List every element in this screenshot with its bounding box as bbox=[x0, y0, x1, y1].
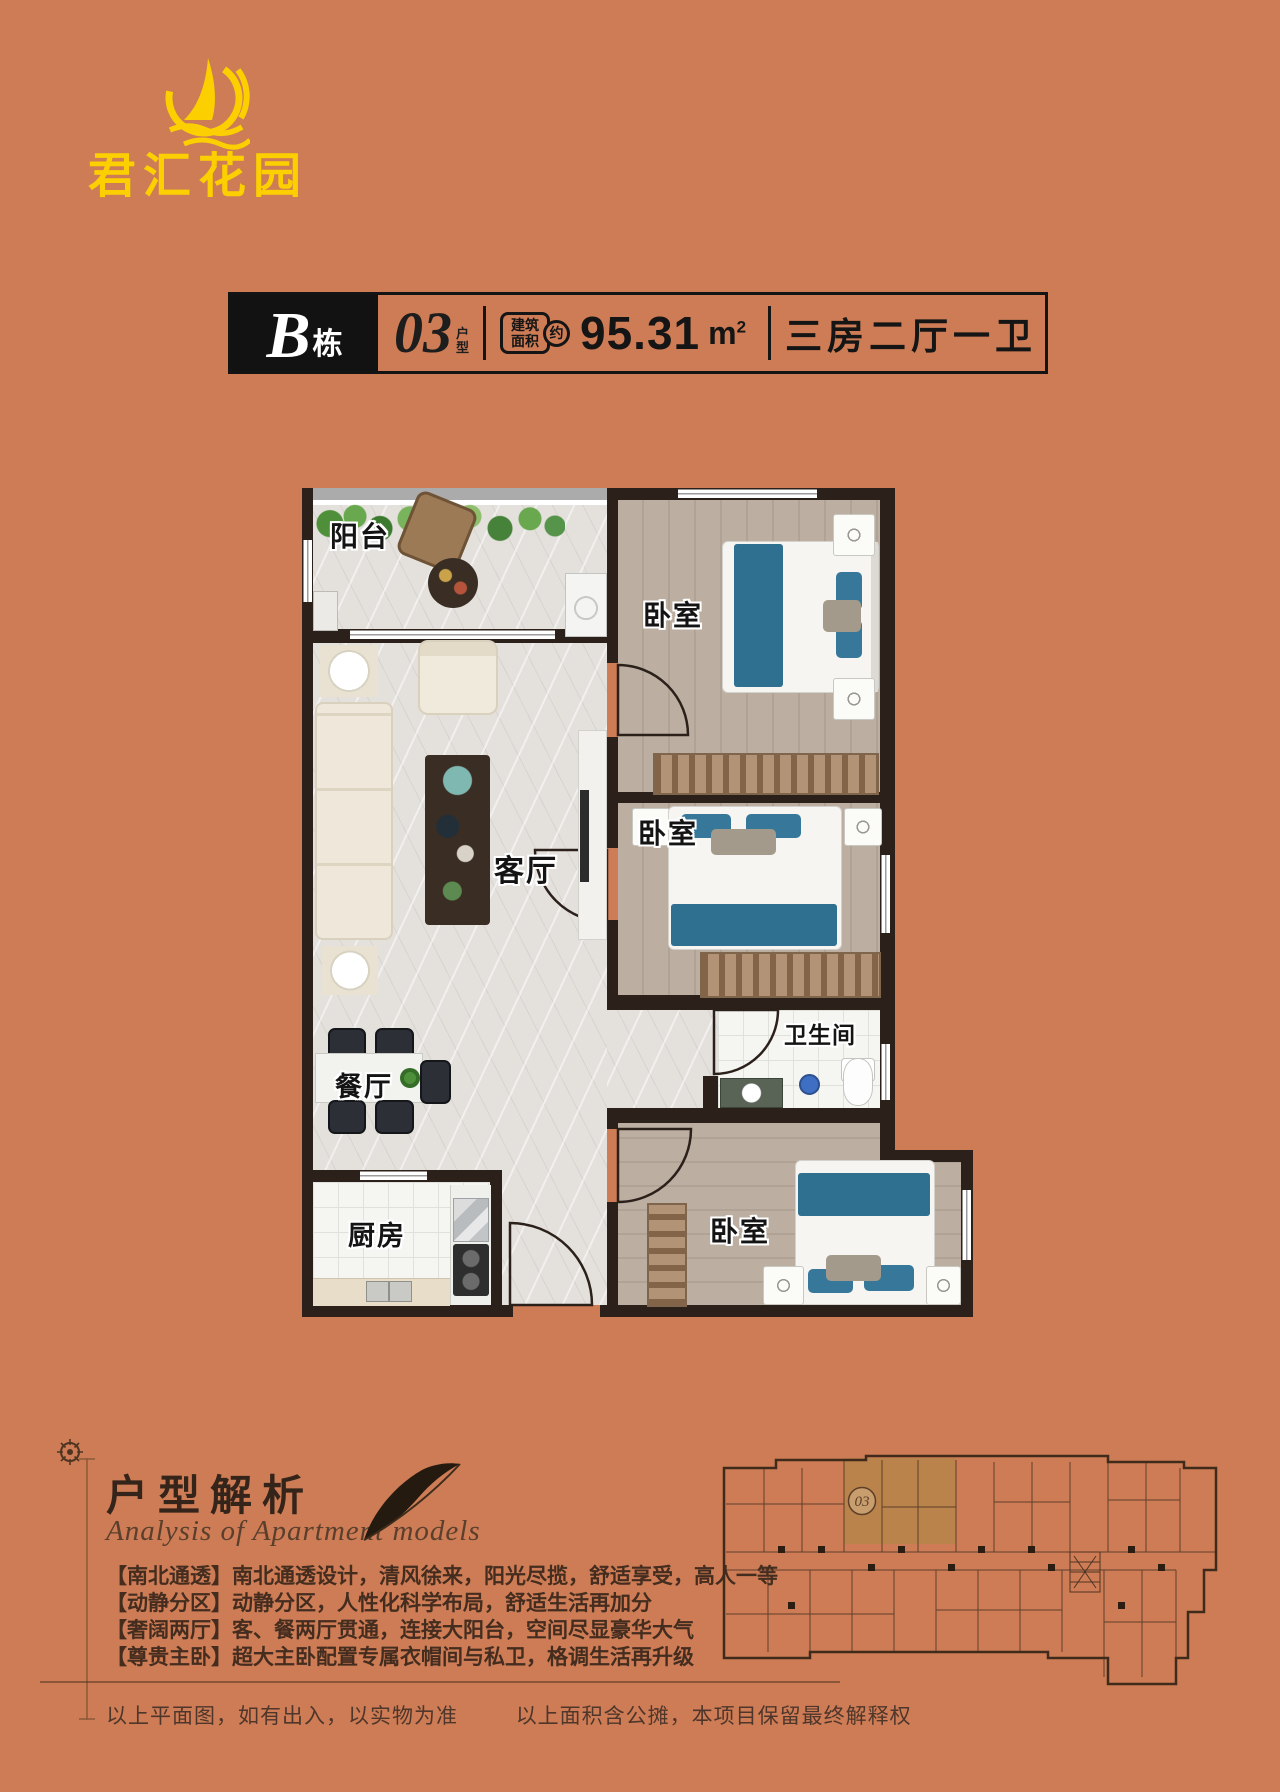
dining-chair bbox=[420, 1060, 451, 1104]
floor-plan: 阳台 卧室 客厅 卧室 卫生间 餐厅 厨房 卧室 bbox=[302, 488, 973, 1317]
feather-quill-icon bbox=[360, 1462, 464, 1544]
bed-top bbox=[722, 541, 879, 693]
label-bedroom-middle: 卧室 bbox=[638, 812, 698, 852]
stove bbox=[453, 1244, 489, 1296]
disclaimer-right: 以上面积含公摊，本项目保留最终解释权 bbox=[516, 1705, 912, 1728]
wall-kitchen-top-b bbox=[427, 1170, 490, 1182]
rug-bedroom-middle bbox=[700, 952, 881, 998]
panel-tick bbox=[79, 1458, 95, 1460]
footer-divider bbox=[40, 1681, 840, 1683]
label-dining: 餐厅 bbox=[335, 1065, 393, 1104]
panel-tick bbox=[79, 1718, 95, 1720]
building-unit-char: 栋 bbox=[313, 325, 343, 365]
area-value: 95.31 bbox=[580, 306, 700, 360]
wall-balcony-stub-left bbox=[313, 629, 350, 643]
kitchen-slider-door bbox=[360, 1170, 427, 1182]
bed-bottom-cushion bbox=[826, 1255, 881, 1281]
fridge bbox=[453, 1198, 489, 1242]
bed-middle-cushion bbox=[711, 829, 776, 855]
bed-bottom bbox=[795, 1160, 935, 1305]
bed-top-headboard bbox=[871, 542, 878, 692]
divider bbox=[483, 306, 486, 360]
brand-name: 君汇花园 bbox=[88, 136, 308, 206]
bathroom-window bbox=[880, 1044, 895, 1100]
mini-plan-door-marks bbox=[778, 1546, 1165, 1609]
wall-kitchen-top-a bbox=[313, 1170, 360, 1182]
area-unit: m2 bbox=[708, 315, 746, 352]
nightstand bbox=[833, 678, 875, 720]
wall-kitchen-right bbox=[490, 1170, 502, 1305]
bedroom-middle-window bbox=[880, 855, 895, 933]
analysis-bullet-4: 【尊贵主卧】超大主卧配置专属衣帽间与私卫，格调生活再升级 bbox=[106, 1641, 694, 1671]
divider bbox=[768, 306, 771, 360]
bed-top-cushion bbox=[823, 600, 861, 632]
label-bedroom-top: 卧室 bbox=[643, 594, 703, 634]
unit-title-bar: B 栋 03 户 型 建筑 面积 约 95.31 m2 三房二厅一卫 bbox=[228, 292, 1048, 374]
approx-badge: 约 bbox=[543, 320, 570, 347]
balcony-cabinet bbox=[565, 573, 607, 637]
nightstand bbox=[833, 514, 875, 556]
nightstand bbox=[926, 1266, 961, 1305]
wall-divider-1 bbox=[607, 488, 618, 663]
label-bathroom: 卫生间 bbox=[784, 1016, 856, 1050]
building-badge: B 栋 bbox=[231, 295, 378, 371]
analysis-bullet-3: 【奢阔两厅】客、餐两厅贯通，连接大阳台，空间尽显豪华大气 bbox=[106, 1614, 694, 1644]
tv bbox=[580, 790, 589, 882]
unit-type-label: 户 型 bbox=[456, 327, 469, 355]
label-balcony: 阳台 bbox=[330, 515, 390, 555]
bed-bottom-blanket bbox=[798, 1173, 930, 1216]
kitchen-sink bbox=[366, 1281, 412, 1302]
wall-bath-left-stub bbox=[703, 1076, 718, 1108]
label-kitchen: 厨房 bbox=[348, 1214, 406, 1253]
poster-page: 君汇花园 B 栋 03 户 型 建筑 面积 约 95.31 m2 三房二厅一卫 bbox=[0, 0, 1280, 1792]
dining-chair bbox=[375, 1100, 414, 1134]
analysis-bullet-1: 【南北通透】南北通透设计，清风徐来，阳光尽揽，舒适享受，高人一等 bbox=[106, 1560, 778, 1590]
sofa bbox=[315, 702, 393, 940]
bed-top-runner bbox=[734, 544, 783, 687]
wall-divider-3 bbox=[607, 920, 618, 1002]
wall-left bbox=[302, 488, 313, 1317]
wall-divider-2 bbox=[607, 737, 618, 848]
balcony-left-fixture bbox=[313, 591, 338, 631]
armchair bbox=[418, 640, 498, 715]
hallway-floor bbox=[607, 1002, 718, 1110]
side-table-bottom bbox=[322, 946, 378, 995]
coffee-table bbox=[425, 755, 490, 925]
footer-disclaimer: 以上平面图，如有出入，以实物为准 以上面积含公摊，本项目保留最终解释权 bbox=[106, 1700, 912, 1730]
disclaimer-left: 以上平面图，如有出入，以实物为准 bbox=[106, 1705, 458, 1728]
bedroom-top-window bbox=[678, 488, 817, 500]
rug-bedroom-top bbox=[653, 753, 879, 795]
balcony-table bbox=[428, 558, 478, 608]
toilet-bowl bbox=[843, 1058, 873, 1106]
wall-bottom-left bbox=[302, 1305, 513, 1317]
dining-chair bbox=[328, 1100, 366, 1134]
rug-bedroom-bottom bbox=[647, 1203, 687, 1307]
label-living: 客厅 bbox=[494, 846, 558, 890]
building-letter: B bbox=[266, 307, 310, 365]
ship-wheel-icon bbox=[56, 1438, 84, 1466]
side-table-top bbox=[320, 645, 378, 697]
unit-number: 03 bbox=[394, 298, 452, 368]
bathroom-vanity bbox=[720, 1078, 783, 1108]
analysis-bullet-2: 【动静分区】动静分区，人性化科学布局，舒适生活再加分 bbox=[106, 1587, 652, 1617]
balcony-left-window bbox=[302, 540, 313, 602]
analysis-title: 户型解析 bbox=[106, 1462, 314, 1523]
mini-plan-unit-number: 03 bbox=[855, 1494, 870, 1510]
nightstand bbox=[763, 1266, 804, 1305]
label-bedroom-bottom: 卧室 bbox=[710, 1210, 770, 1250]
wall-bed3-left-b bbox=[607, 1202, 618, 1305]
bedroom-bottom-window bbox=[961, 1190, 973, 1260]
nightstand bbox=[844, 808, 882, 846]
layout-summary: 三房二厅一卫 bbox=[785, 306, 1037, 360]
wall-bath-bottom bbox=[607, 1108, 895, 1123]
bathroom-fan bbox=[799, 1074, 820, 1095]
wall-bed3-left-a bbox=[607, 1123, 618, 1129]
dining-plant bbox=[400, 1068, 420, 1088]
bed-middle-blanket bbox=[671, 904, 837, 946]
mini-floor-plate: 03 bbox=[718, 1452, 1223, 1697]
